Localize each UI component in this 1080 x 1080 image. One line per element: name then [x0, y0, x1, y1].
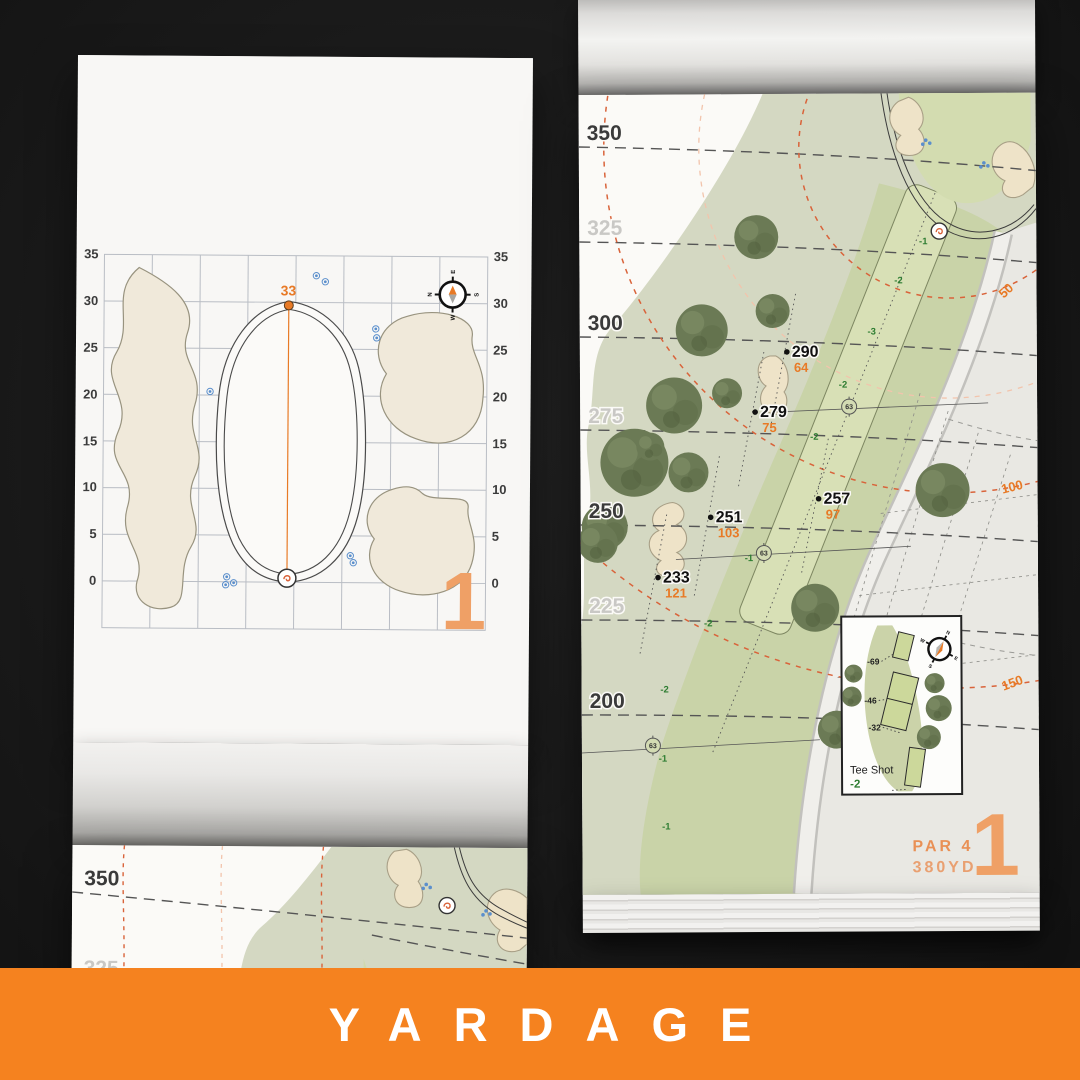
svg-text:10: 10: [82, 479, 96, 494]
tee-inset-value: -2: [850, 779, 860, 791]
tree-icon: [646, 377, 702, 433]
right-page-curl: [578, 0, 1035, 95]
yardage-book-poster: 33: [0, 0, 1080, 1080]
svg-text:30: 30: [493, 296, 507, 311]
svg-text:20: 20: [493, 389, 507, 404]
svg-text:300: 300: [588, 312, 623, 335]
svg-text:350: 350: [587, 122, 622, 145]
center-mark: 63: [845, 404, 853, 411]
svg-text:200: 200: [590, 690, 625, 713]
hole-number: 1: [971, 795, 1020, 894]
hole-number: 1: [440, 556, 486, 647]
svg-text:-2: -2: [660, 685, 669, 696]
svg-text:-1: -1: [745, 553, 754, 564]
tree-icon: [926, 695, 952, 721]
svg-text:290: 290: [792, 344, 819, 361]
svg-text:275: 275: [588, 405, 623, 428]
svg-text:0: 0: [89, 573, 96, 588]
entry-marker-icon: [278, 569, 296, 587]
svg-text:103: 103: [718, 525, 740, 540]
tree-icon: [925, 673, 945, 693]
svg-text:64: 64: [794, 360, 809, 375]
tree-icon: [917, 725, 941, 749]
tree-icon: [712, 378, 742, 408]
svg-text:25: 25: [493, 343, 507, 358]
tree-icon: [578, 523, 617, 563]
svg-text:257: 257: [824, 491, 851, 508]
svg-text:-32: -32: [868, 722, 881, 732]
tree-icon: [734, 215, 778, 259]
svg-text:-2: -2: [894, 275, 903, 286]
svg-text:97: 97: [826, 507, 841, 522]
green-detail-map: 33: [73, 55, 533, 745]
entry-marker-icon: [931, 223, 947, 239]
banner-title: YARDAGE: [297, 997, 784, 1052]
compass-n: N: [428, 292, 434, 296]
entry-marker-icon: [439, 898, 455, 914]
compass-w: W: [451, 314, 457, 320]
svg-text:-2: -2: [810, 432, 819, 443]
green-detail-page: 33: [73, 55, 533, 745]
svg-text:-2: -2: [704, 618, 713, 629]
tree-icon: [756, 294, 790, 328]
page-stack-edges: [583, 893, 1040, 933]
svg-text:15: 15: [83, 433, 97, 448]
pin-distance-label: 33: [281, 282, 297, 298]
svg-text:5: 5: [89, 526, 96, 541]
hole-map: 63 63 63: [578, 93, 1039, 895]
tree-icon: [844, 665, 862, 683]
svg-text:-2: -2: [839, 380, 848, 391]
green-outline: [215, 301, 366, 583]
yardage-total-label: 380YD: [913, 859, 977, 876]
pin-dot: [284, 301, 293, 310]
svg-text:10: 10: [492, 482, 506, 497]
svg-text:35: 35: [84, 246, 98, 261]
svg-text:233: 233: [663, 569, 690, 586]
tree-icon: [915, 463, 969, 517]
tee-inset-title: Tee Shot: [850, 764, 893, 776]
svg-text:250: 250: [589, 500, 624, 523]
svg-text:75: 75: [762, 420, 777, 435]
tree-icon: [636, 433, 664, 461]
svg-text:-69: -69: [867, 656, 880, 666]
svg-text:30: 30: [84, 293, 98, 308]
yardage-banner: YARDAGE: [0, 968, 1080, 1080]
compass-s: S: [475, 293, 481, 297]
svg-text:5: 5: [492, 529, 499, 544]
svg-text:-1: -1: [662, 822, 671, 833]
svg-text:35: 35: [494, 249, 508, 264]
svg-text:225: 225: [589, 595, 624, 618]
tree-icon: [668, 452, 708, 492]
svg-text:25: 25: [83, 340, 97, 355]
hole-map-page: 63 63 63: [578, 93, 1039, 895]
tree-icon: [842, 687, 862, 707]
tree-icon: [676, 304, 728, 356]
svg-text:-1: -1: [919, 236, 928, 247]
compass-e: E: [451, 270, 457, 274]
bunker-right-upper: [378, 312, 484, 443]
svg-text:279: 279: [760, 404, 787, 421]
svg-text:251: 251: [716, 509, 743, 526]
yardline-350: 350: [84, 867, 119, 890]
par-label: PAR 4: [912, 838, 973, 855]
svg-text:-3: -3: [867, 326, 876, 337]
svg-text:-46: -46: [864, 695, 877, 705]
center-mark: 63: [649, 743, 657, 750]
svg-text:20: 20: [83, 387, 97, 402]
center-mark: 63: [760, 551, 768, 558]
left-booklet: 33: [78, 55, 533, 58]
svg-text:0: 0: [491, 576, 498, 591]
tree-icon: [791, 584, 839, 632]
svg-text:325: 325: [587, 217, 622, 240]
svg-text:15: 15: [492, 436, 506, 451]
tee-shot-inset: -69 -46 -32 Tee Shot -2: [841, 616, 969, 795]
svg-text:-1: -1: [659, 754, 668, 765]
left-page-curl: [72, 742, 528, 848]
svg-text:121: 121: [665, 585, 687, 600]
